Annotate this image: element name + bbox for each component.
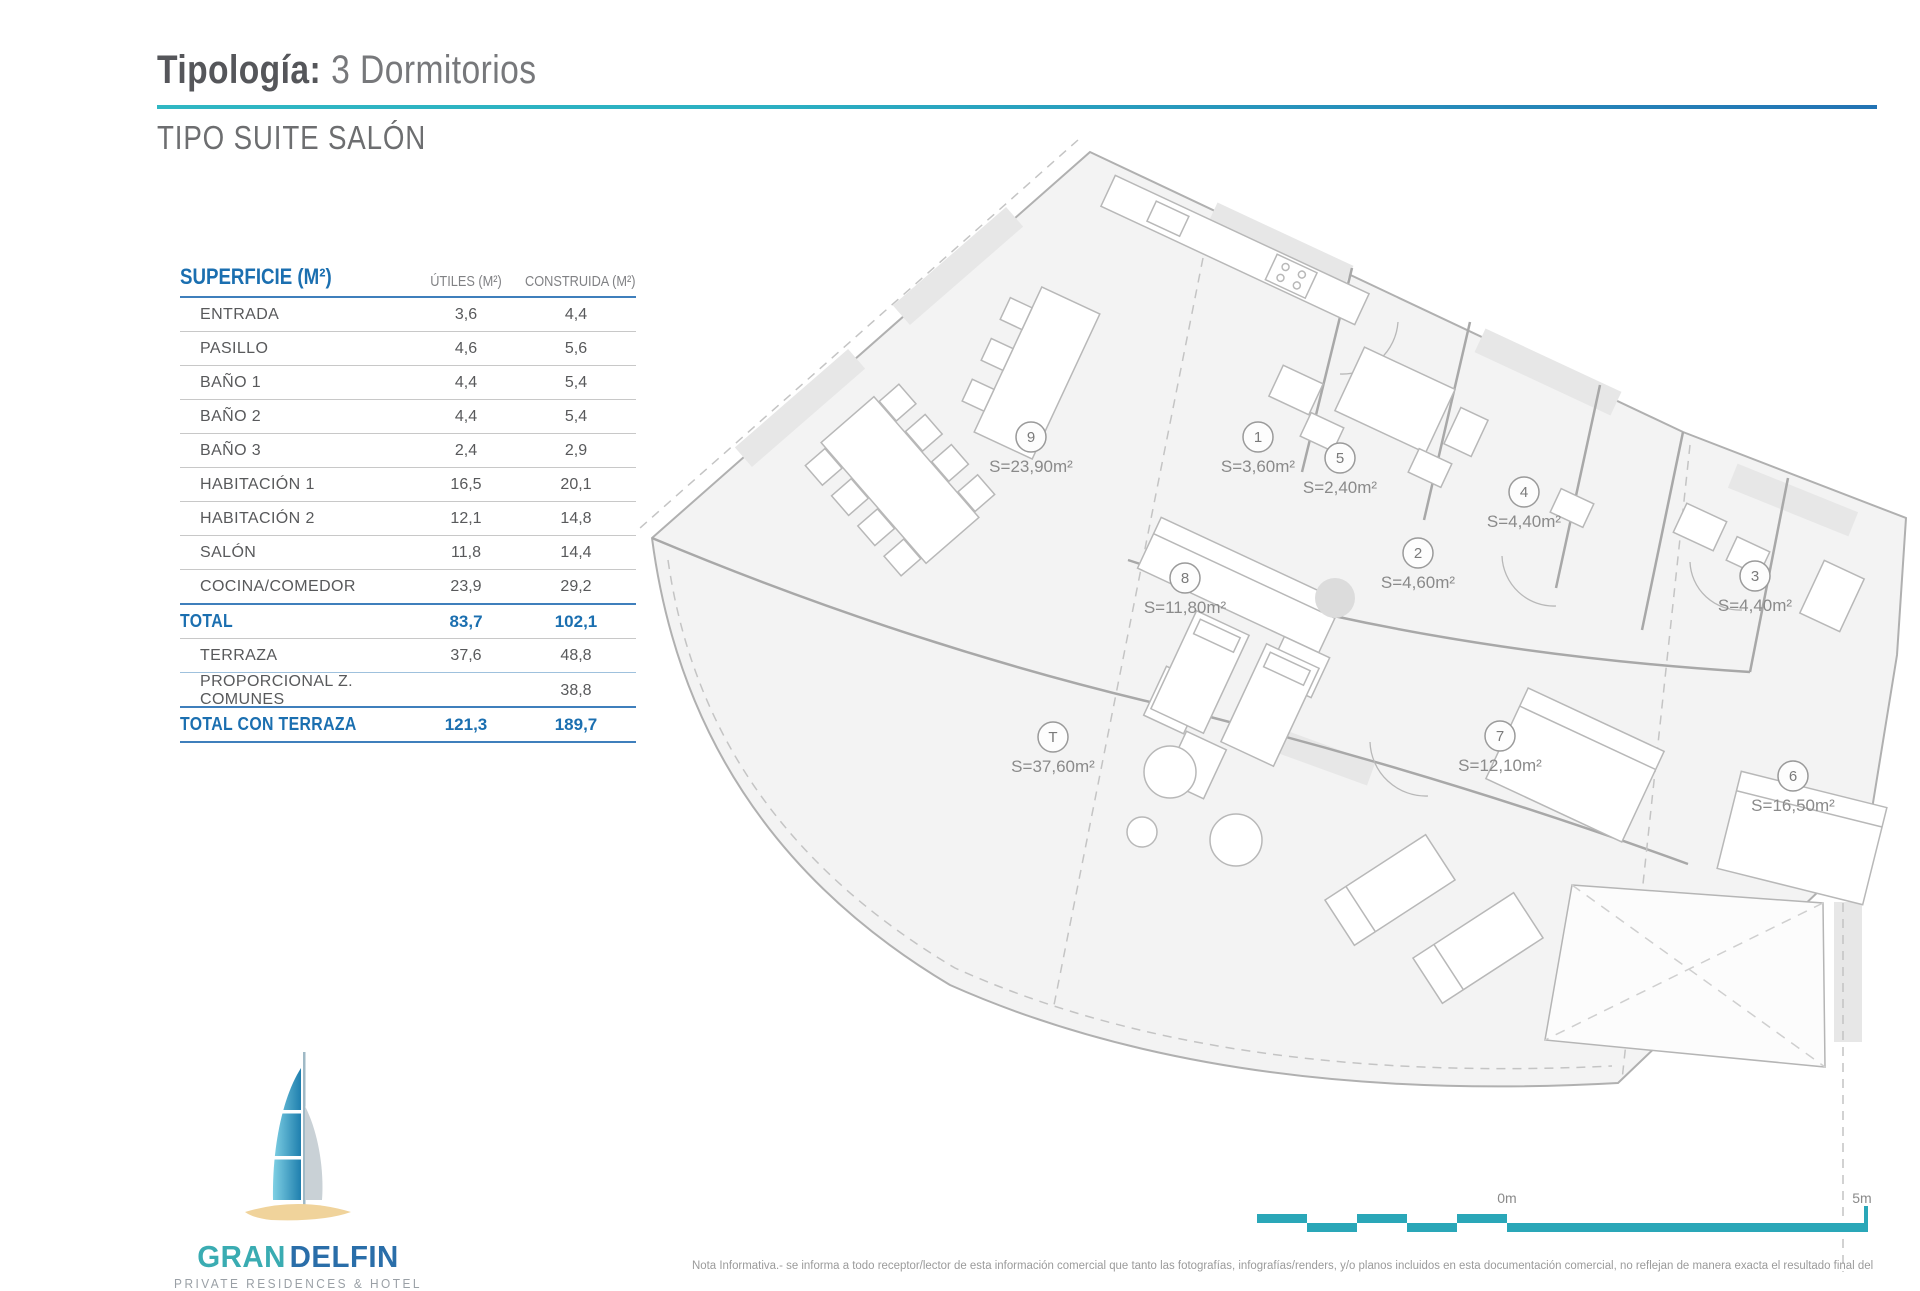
svg-text:S=23,90m²: S=23,90m²: [989, 457, 1073, 476]
plant: [1315, 578, 1355, 618]
svg-text:1: 1: [1254, 429, 1262, 446]
svg-text:3: 3: [1751, 568, 1759, 585]
svg-text:S=2,40m²: S=2,40m²: [1303, 478, 1378, 497]
logo-wordmark: GRANDELFIN: [165, 1239, 431, 1275]
terrace-chair: [1210, 814, 1262, 866]
svg-text:9: 9: [1027, 429, 1035, 446]
terrace-table: [1127, 817, 1157, 847]
svg-text:S=11,80m²: S=11,80m²: [1144, 598, 1227, 617]
svg-text:7: 7: [1496, 728, 1504, 745]
scale-bar: 0m 5m: [1257, 1190, 1872, 1232]
svg-text:5: 5: [1336, 450, 1344, 467]
logo-delfin: DELFIN: [290, 1239, 399, 1274]
svg-text:S=4,60m²: S=4,60m²: [1381, 573, 1456, 592]
svg-text:S=37,60m²: S=37,60m²: [1011, 757, 1095, 776]
svg-text:S=3,60m²: S=3,60m²: [1221, 457, 1296, 476]
svg-text:T: T: [1048, 729, 1057, 746]
svg-text:2: 2: [1414, 545, 1422, 562]
scale-zero-label: 0m: [1497, 1190, 1516, 1206]
scale-five-label: 5m: [1852, 1190, 1871, 1206]
logo-subtitle: PRIVATE RESIDENCES & HOTEL: [165, 1277, 431, 1291]
svg-text:S=4,40m²: S=4,40m²: [1718, 596, 1793, 615]
svg-text:S=16,50m²: S=16,50m²: [1751, 796, 1835, 815]
legal-note: Nota Informativa.- se informa a todo rec…: [692, 1260, 1876, 1272]
logo-gran: GRAN: [197, 1239, 286, 1274]
brochure-page: Tipología:3 Dormitorios TIPO SUITE SALÓN…: [0, 0, 1920, 1280]
svg-text:4: 4: [1520, 484, 1528, 501]
svg-text:6: 6: [1789, 768, 1797, 785]
brand-logo: GRANDELFIN PRIVATE RESIDENCES & HOTEL: [158, 1048, 438, 1291]
terrace-chair: [1144, 746, 1196, 798]
svg-text:S=4,40m²: S=4,40m²: [1487, 512, 1562, 531]
excluded-area: [1545, 885, 1825, 1067]
sail-tower-icon: [223, 1048, 373, 1228]
svg-text:8: 8: [1181, 570, 1189, 587]
svg-text:S=12,10m²: S=12,10m²: [1458, 756, 1542, 775]
